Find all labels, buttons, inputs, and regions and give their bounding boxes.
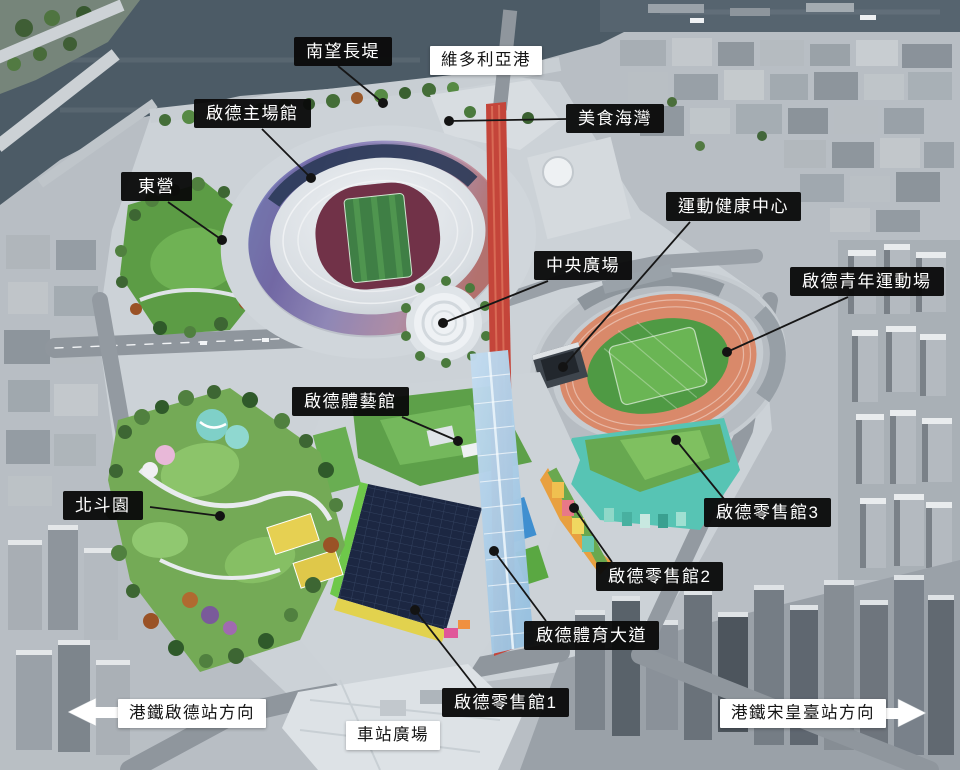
aerial-rendering [0,0,960,770]
label-south-breakwater: 南望長堤 [294,37,392,66]
label-station-square: 車站廣場 [346,721,440,750]
label-wellness-centre: 運動健康中心 [666,192,801,221]
label-dining-cove: 美食海灣 [566,104,664,133]
label-retail-hall-1: 啟德零售館1 [442,688,569,717]
label-east-camp: 東營 [121,172,192,201]
label-retail-hall-3: 啟德零售館3 [704,498,831,527]
label-sports-avenue: 啟德體育大道 [524,621,659,650]
label-victoria-harbour: 維多利亞港 [430,46,542,75]
label-mtr-kai-tak-direction: 港鐵啟德站方向 [118,699,266,728]
label-youth-sports-ground: 啟德青年運動場 [790,267,944,296]
label-central-square: 中央廣場 [534,251,632,280]
label-dipper-garden: 北斗園 [63,491,143,520]
kai-tak-sports-park-aerial-map: 南望長堤 維多利亞港 啟德主場館 美食海灣 東營 運動健康中心 中央廣場 啟德青… [0,0,960,770]
label-retail-hall-2: 啟德零售館2 [596,562,723,591]
label-mtr-sung-wong-toi-direction: 港鐵宋皇臺站方向 [720,699,886,728]
label-arena: 啟德體藝館 [292,387,409,416]
label-main-stadium: 啟德主場館 [194,99,311,128]
